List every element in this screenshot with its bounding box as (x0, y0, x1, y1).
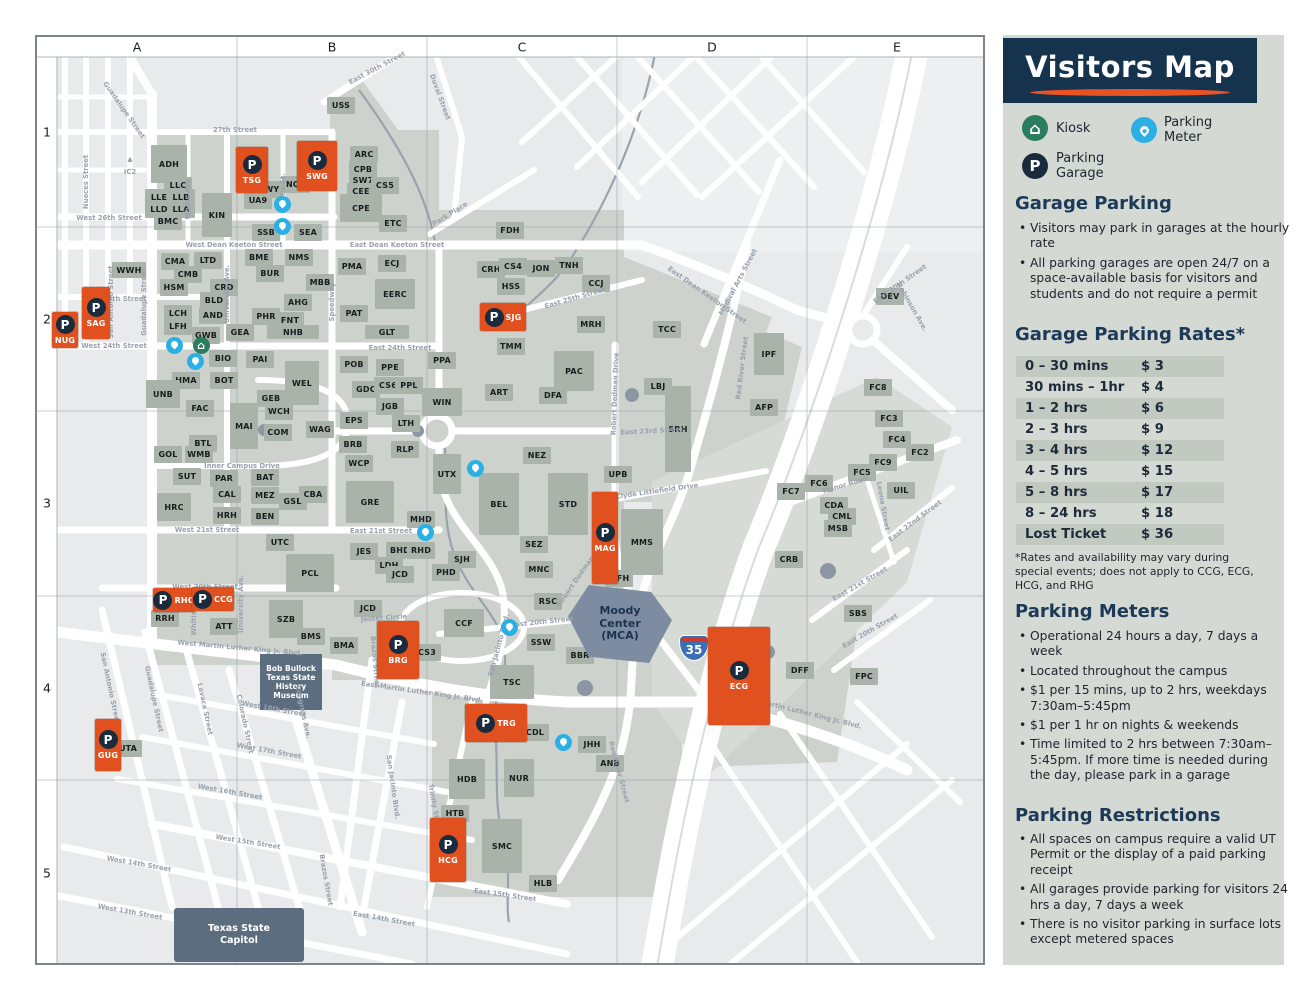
title-underline-swoosh (1030, 89, 1230, 96)
rates-row: 2 – 3 hrs$ 9 (1016, 419, 1224, 440)
rates-row: 5 – 8 hrs$ 17 (1016, 482, 1224, 503)
legend-garage-label: Parking Garage (1056, 151, 1104, 181)
rates-row: Lost Ticket$ 36 (1016, 524, 1224, 545)
parking-restrictions-heading: Parking Restrictions (1015, 805, 1277, 826)
bullet-item: Operational 24 hours a day, 7 days a wee… (1030, 629, 1292, 660)
parking-restrictions-bullets: All spaces on campus require a valid UT … (1017, 832, 1292, 952)
parking-meter-icon (1131, 117, 1157, 143)
legend-meter-label: Parking Meter (1164, 115, 1212, 145)
garage-rates-heading: Garage Parking Rates* (1015, 324, 1277, 345)
rates-row: 1 – 2 hrs$ 6 (1016, 398, 1224, 419)
bullet-item: $1 per 1 hr on nights & weekends (1030, 718, 1292, 733)
bullet-item: There is no visitor parking in surface l… (1030, 917, 1292, 948)
grid-number: 1 (43, 125, 51, 140)
garage-parking-bullets: Visitors may park in garages at the hour… (1017, 221, 1292, 306)
kiosk-icon: ⌂ (1022, 115, 1048, 141)
grid-letter: B (328, 40, 337, 55)
bullet-item: $1 per 15 mins, up to 2 hrs, weekdays 7:… (1030, 683, 1292, 714)
parking-meters-bullets: Operational 24 hours a day, 7 days a wee… (1017, 629, 1292, 788)
legend-kiosk-label: Kiosk (1056, 121, 1090, 136)
parking-garage-icon: P (1022, 153, 1048, 179)
grid-number: 3 (43, 496, 51, 511)
grid-label-layer: ABCDE12345 (35, 35, 985, 965)
bullet-item: All spaces on campus require a valid UT … (1030, 832, 1292, 878)
grid-letter: D (707, 40, 717, 55)
rates-footnote: *Rates and availability may vary during … (1015, 551, 1265, 593)
grid-number: 2 (43, 312, 51, 327)
grid-number: 4 (43, 681, 51, 696)
garage-rates-table: 0 – 30 mins$ 330 mins – 1hr$ 41 – 2 hrs$… (1016, 356, 1224, 545)
rates-row: 4 – 5 hrs$ 15 (1016, 461, 1224, 482)
bullet-item: Time limited to 2 hrs between 7:30am–5:4… (1030, 737, 1292, 783)
bullet-item: Located throughout the campus (1030, 664, 1292, 679)
campus-map: ADHLLCLLELLBLLDLLABMCKINUSSBWYUA9NOASSBS… (35, 35, 985, 965)
rates-row: 3 – 4 hrs$ 12 (1016, 440, 1224, 461)
bullet-item: Visitors may park in garages at the hour… (1030, 221, 1292, 252)
visitors-map-page: ADHLLCLLELLBLLDLLABMCKINUSSBWYUA9NOASSBS… (0, 0, 1300, 1005)
rates-row: 0 – 30 mins$ 3 (1016, 356, 1224, 377)
bullet-item: All garages provide parking for visitors… (1030, 882, 1292, 913)
grid-number: 5 (43, 866, 51, 881)
rates-row: 30 mins – 1hr$ 4 (1016, 377, 1224, 398)
bullet-item: All parking garages are open 24/7 on a s… (1030, 256, 1292, 302)
sidebar-header: Visitors Map (1003, 38, 1257, 103)
rates-row: 8 – 24 hrs$ 18 (1016, 503, 1224, 524)
grid-letter: E (893, 40, 901, 55)
grid-letter: C (518, 40, 527, 55)
garage-parking-heading: Garage Parking (1015, 193, 1277, 214)
page-title: Visitors Map (1003, 50, 1257, 84)
grid-letter: A (133, 40, 142, 55)
parking-meters-heading: Parking Meters (1015, 601, 1277, 622)
